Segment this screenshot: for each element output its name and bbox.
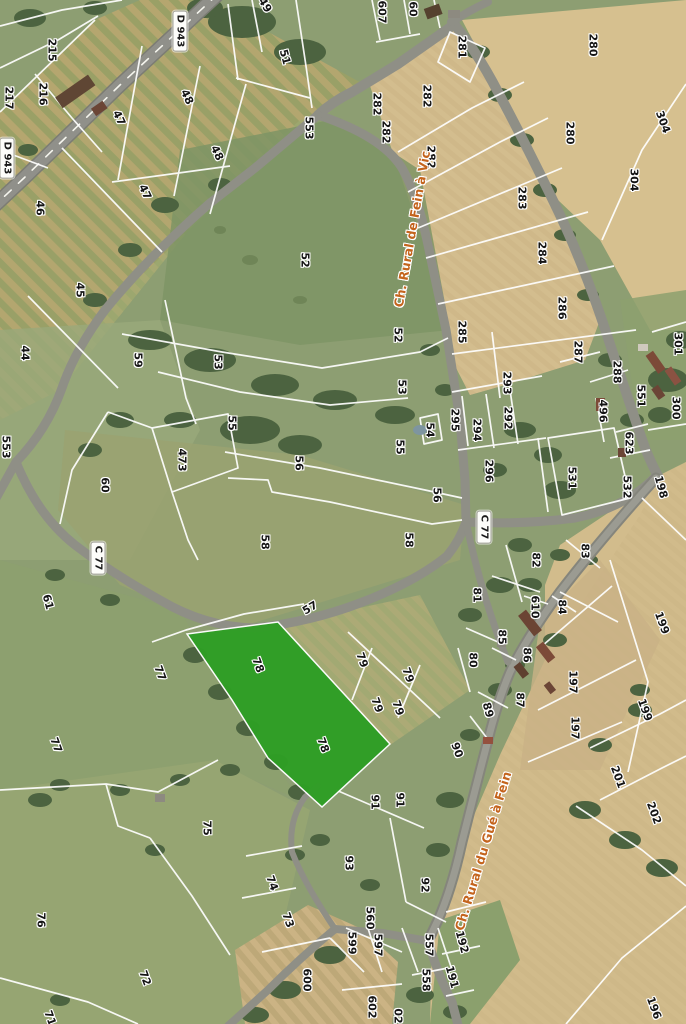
parcel-label-78: 78 bbox=[314, 736, 331, 755]
parcel-label-56: 56 bbox=[293, 455, 306, 470]
parcel-label-284: 284 bbox=[536, 242, 549, 265]
parcel-label-58: 58 bbox=[259, 534, 272, 549]
road-name-label: Ch. Rural de Fein à Vic bbox=[391, 150, 433, 309]
parcel-label-280: 280 bbox=[564, 122, 577, 145]
parcel-label-602: 602 bbox=[366, 996, 379, 1019]
parcel-label-599: 599 bbox=[346, 932, 359, 955]
parcel-label-51: 51 bbox=[277, 48, 294, 66]
parcel-label-531: 531 bbox=[566, 467, 579, 490]
parcel-label-192: 192 bbox=[453, 929, 472, 955]
parcel-label-304: 304 bbox=[653, 109, 673, 135]
parcel-label-71: 71 bbox=[41, 1009, 58, 1024]
parcel-label-59: 59 bbox=[132, 352, 145, 367]
parcel-label-288: 288 bbox=[611, 361, 624, 384]
parcel-label-282: 282 bbox=[380, 121, 393, 144]
parcel-label-607: 607 bbox=[376, 1, 389, 24]
parcel-label-553: 553 bbox=[0, 436, 13, 459]
parcel-label-199: 199 bbox=[635, 697, 655, 723]
parcel-label-217: 217 bbox=[3, 87, 16, 110]
parcel-label-46: 46 bbox=[34, 200, 47, 215]
parcel-label-48: 48 bbox=[208, 143, 226, 162]
parcel-label-80: 80 bbox=[467, 652, 480, 667]
parcel-label-92: 92 bbox=[419, 877, 432, 892]
parcel-label-201: 201 bbox=[608, 764, 628, 790]
parcel-label-597: 597 bbox=[372, 934, 385, 957]
parcel-label-300: 300 bbox=[670, 397, 683, 420]
parcel-label-551: 551 bbox=[635, 385, 648, 408]
parcel-label-197: 197 bbox=[569, 717, 582, 740]
parcel-label-87: 87 bbox=[514, 692, 527, 707]
parcel-label-78: 78 bbox=[249, 656, 266, 675]
parcel-label-294: 294 bbox=[471, 419, 484, 442]
parcel-label-61: 61 bbox=[40, 593, 57, 611]
parcel-label-90: 90 bbox=[448, 741, 465, 760]
parcel-label-287: 287 bbox=[572, 341, 585, 364]
parcel-label-49: 49 bbox=[256, 0, 275, 15]
parcel-label-48: 48 bbox=[178, 87, 196, 106]
parcel-label-85: 85 bbox=[496, 629, 509, 644]
parcel-label-198: 198 bbox=[652, 474, 671, 500]
parcel-label-60: 60 bbox=[407, 1, 420, 16]
parcel-label-77: 77 bbox=[151, 664, 168, 683]
parcel-label-293: 293 bbox=[501, 372, 514, 395]
parcel-label-282: 282 bbox=[421, 85, 434, 108]
parcel-label-558: 558 bbox=[420, 969, 433, 992]
parcel-label-623: 623 bbox=[623, 432, 636, 455]
parcel-label-60: 60 bbox=[99, 477, 112, 492]
parcel-label-79: 79 bbox=[353, 651, 370, 670]
parcel-label-191: 191 bbox=[443, 964, 462, 990]
parcel-label-197: 197 bbox=[567, 671, 580, 694]
parcel-label-215: 215 bbox=[46, 39, 59, 62]
parcel-label-286: 286 bbox=[556, 297, 569, 320]
parcel-label-74: 74 bbox=[263, 874, 280, 893]
parcel-label-304: 304 bbox=[628, 169, 641, 192]
parcel-label-57: 57 bbox=[300, 599, 320, 618]
parcel-label-282: 282 bbox=[371, 93, 384, 116]
parcel-label-55: 55 bbox=[226, 415, 239, 430]
parcel-label-91: 91 bbox=[369, 794, 382, 809]
parcel-label-52: 52 bbox=[392, 327, 405, 342]
parcel-label-82: 82 bbox=[530, 552, 543, 567]
parcel-label-196: 196 bbox=[644, 995, 664, 1021]
parcel-label-296: 296 bbox=[483, 460, 496, 483]
parcel-label-280: 280 bbox=[587, 34, 600, 57]
parcel-label-72: 72 bbox=[136, 969, 153, 988]
parcel-label-600: 600 bbox=[301, 969, 314, 992]
parcel-label-79: 79 bbox=[399, 666, 416, 685]
parcel-label-79: 79 bbox=[389, 699, 406, 718]
parcel-label-295: 295 bbox=[449, 409, 462, 432]
road-name-label: Ch. Rural du Gué à Fein bbox=[452, 770, 515, 933]
parcel-label-283: 283 bbox=[516, 187, 529, 210]
road-shield-d943: D 943 bbox=[0, 138, 15, 179]
parcel-label-47: 47 bbox=[136, 182, 154, 201]
parcel-label-75: 75 bbox=[201, 820, 214, 835]
parcel-label-73: 73 bbox=[279, 911, 296, 930]
parcel-label-52: 52 bbox=[299, 252, 312, 267]
parcel-label-84: 84 bbox=[556, 599, 569, 614]
parcel-label-47: 47 bbox=[110, 108, 128, 127]
parcel-label-199: 199 bbox=[652, 610, 672, 636]
cadastre-map[interactable]: 2152162174748484746454459534951607602812… bbox=[0, 0, 686, 1024]
parcel-label-560: 560 bbox=[364, 907, 377, 930]
road-shield-c77: C 77 bbox=[477, 511, 492, 544]
parcel-label-557: 557 bbox=[423, 934, 436, 957]
parcel-label-81: 81 bbox=[471, 587, 484, 602]
parcel-label-89: 89 bbox=[480, 701, 497, 719]
parcel-label-202: 202 bbox=[644, 800, 664, 826]
parcel-label-79: 79 bbox=[368, 696, 385, 715]
parcel-label-54: 54 bbox=[424, 422, 437, 437]
parcel-label-91: 91 bbox=[394, 792, 407, 807]
parcel-label-56: 56 bbox=[431, 487, 444, 502]
parcel-label-496: 496 bbox=[597, 400, 610, 423]
parcel-label-53: 53 bbox=[396, 379, 409, 394]
parcel-label-53: 53 bbox=[212, 354, 225, 369]
parcel-label-02: 02 bbox=[392, 1008, 405, 1023]
parcel-label-532: 532 bbox=[621, 476, 634, 499]
parcel-label-83: 83 bbox=[579, 543, 592, 558]
parcel-label-473: 473 bbox=[176, 449, 189, 472]
parcel-label-553: 553 bbox=[303, 117, 316, 140]
labels-layer: 2152162174748484746454459534951607602812… bbox=[0, 0, 686, 1024]
parcel-label-55: 55 bbox=[394, 439, 407, 454]
parcel-label-216: 216 bbox=[37, 83, 50, 106]
parcel-label-45: 45 bbox=[74, 282, 87, 297]
parcel-label-281: 281 bbox=[456, 36, 469, 59]
parcel-label-77: 77 bbox=[47, 736, 64, 755]
parcel-label-292: 292 bbox=[502, 407, 515, 430]
parcel-label-301: 301 bbox=[672, 333, 685, 356]
parcel-label-58: 58 bbox=[403, 532, 416, 547]
parcel-label-610: 610 bbox=[529, 596, 542, 619]
parcel-label-93: 93 bbox=[343, 855, 356, 870]
parcel-label-86: 86 bbox=[521, 647, 534, 662]
parcel-label-44: 44 bbox=[19, 345, 32, 360]
parcel-label-285: 285 bbox=[456, 321, 469, 344]
road-shield-d943: D 943 bbox=[173, 11, 188, 52]
parcel-label-76: 76 bbox=[35, 912, 48, 927]
road-shield-c77: C 77 bbox=[91, 542, 106, 575]
